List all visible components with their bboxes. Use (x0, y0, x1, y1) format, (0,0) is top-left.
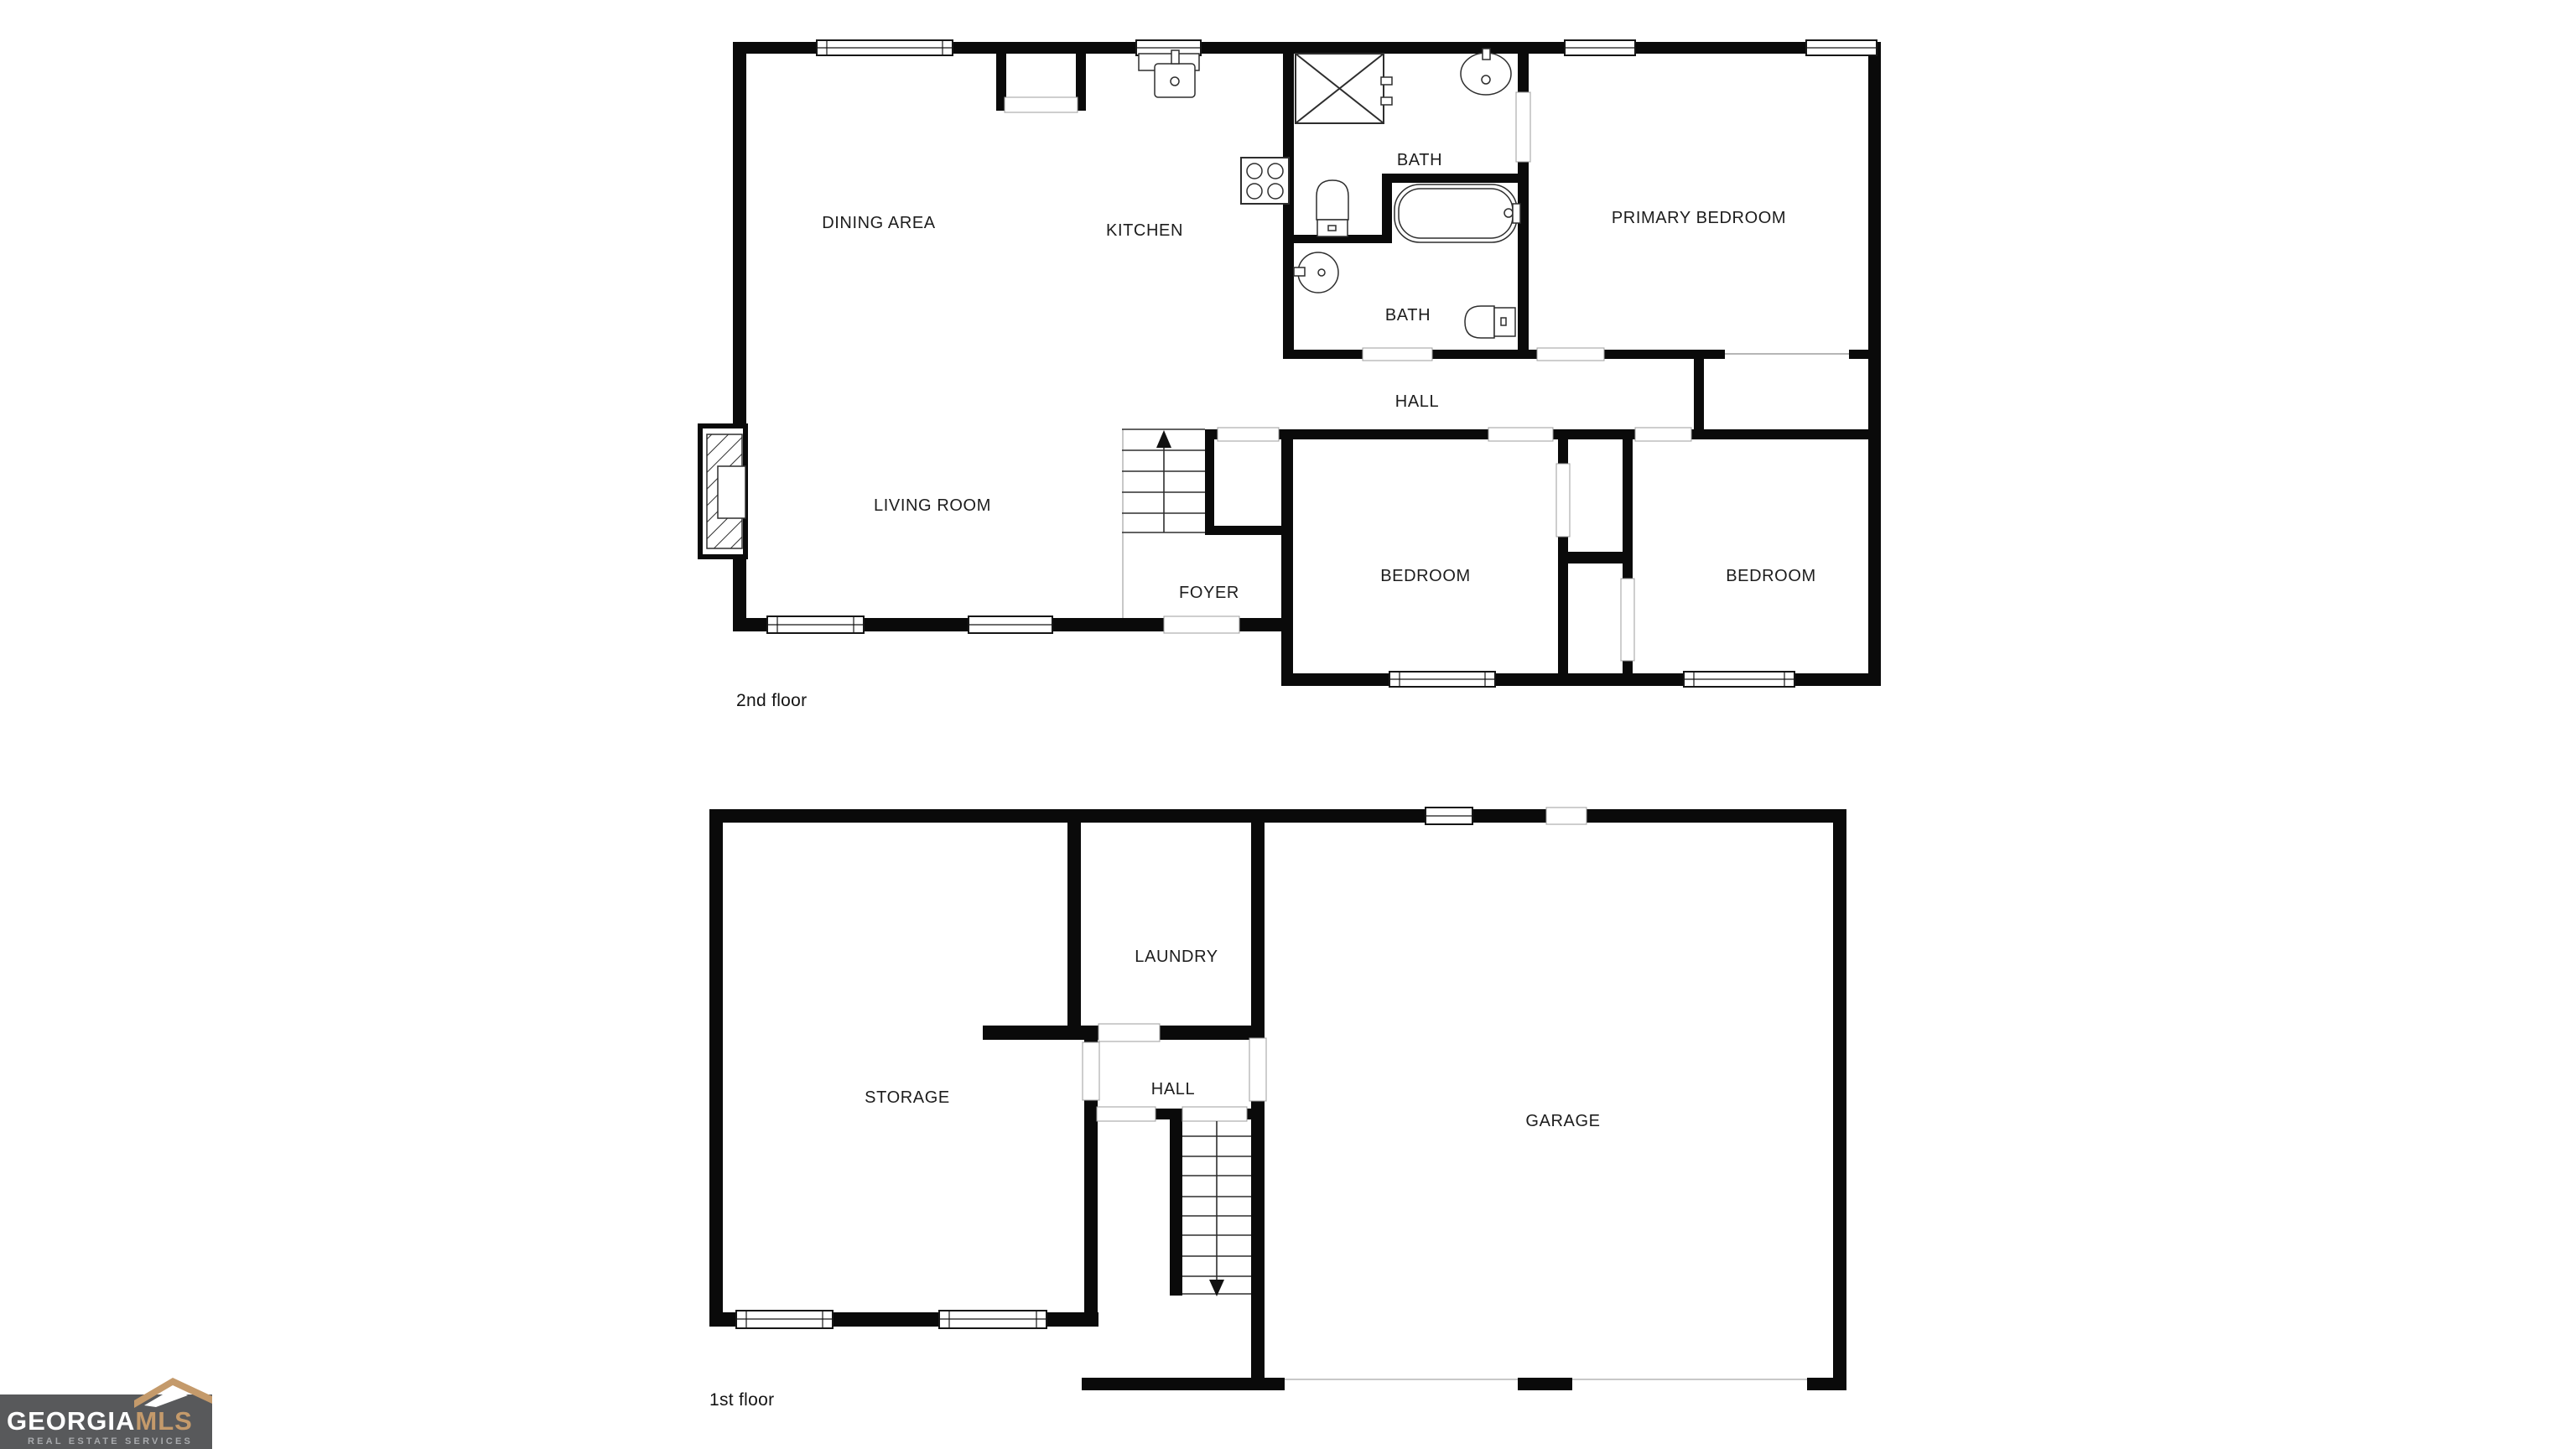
sliding-closet-door (1725, 349, 1849, 360)
floor-plan-2nd-floor: DINING AREA KITCHEN BATH PRIMARY BEDROOM… (700, 40, 1881, 710)
bathroom-sink-icon (1461, 49, 1511, 95)
room-label-bath-top: BATH (1397, 151, 1442, 169)
window-icon (1806, 40, 1877, 55)
room-label-storage: STORAGE (865, 1088, 950, 1107)
floor-label-2nd: 2nd floor (736, 691, 807, 710)
door-opening-primary-to-bath (1516, 92, 1530, 162)
window-icon (817, 40, 953, 55)
staircase-down-icon (1182, 1121, 1251, 1296)
room-label-primary-bedroom: PRIMARY BEDROOM (1612, 209, 1786, 227)
shower-icon (1296, 54, 1392, 123)
floor-label-1st: 1st floor (709, 1390, 774, 1410)
window-icon (1684, 672, 1794, 687)
room-label-hall-1st: HALL (1151, 1080, 1195, 1098)
door-opening-closet-left (1556, 464, 1570, 537)
bathtub-icon (1394, 184, 1520, 242)
room-label-foyer: FOYER (1179, 584, 1239, 602)
door-opening-storage-hall (1083, 1042, 1099, 1100)
windows-1st-floor (736, 808, 1472, 1328)
window-icon (736, 1311, 833, 1328)
door-opening-closet-right (1621, 579, 1634, 661)
door-opening-laundry (1098, 1024, 1160, 1041)
door-opening-pantry (1005, 97, 1078, 112)
room-label-bedroom-right: BEDROOM (1726, 567, 1816, 585)
room-label-bedroom-left: BEDROOM (1380, 567, 1471, 585)
room-label-garage: GARAGE (1525, 1112, 1600, 1130)
window-icon (1389, 672, 1495, 687)
window-icon (767, 616, 864, 633)
windows-2nd-floor (767, 40, 1877, 687)
window-icon (939, 1311, 1046, 1328)
room-label-hall: HALL (1395, 392, 1439, 411)
georgia-mls-logo: GEORGIAMLS REAL ESTATE SERVICES (0, 1378, 212, 1449)
floor-plan-canvas: DINING AREA KITCHEN BATH PRIMARY BEDROOM… (0, 0, 2576, 1449)
door-opening-hall-closet (1218, 428, 1279, 441)
logo-brand-text: GEORGIAMLS (7, 1406, 193, 1436)
room-label-living-room: LIVING ROOM (874, 496, 991, 515)
toilet-icon (1465, 306, 1515, 338)
floor-plan-page: DINING AREA KITCHEN BATH PRIMARY BEDROOM… (0, 0, 2576, 1449)
door-opening-hall-to-bath (1363, 348, 1432, 361)
bathroom-sink-icon (1294, 252, 1338, 293)
toilet-icon (1317, 180, 1348, 236)
window-icon (1565, 40, 1635, 55)
door-opening-bedroom-left (1488, 428, 1553, 441)
stove-icon (1241, 158, 1289, 204)
window-icon (969, 616, 1052, 633)
room-label-laundry: LAUNDRY (1135, 948, 1218, 966)
floor-plan-1st-floor: LAUNDRY STORAGE HALL GARAGE 1st floor (709, 808, 1846, 1410)
room-label-dining-area: DINING AREA (822, 214, 936, 232)
door-opening-foyer-entry (1164, 616, 1239, 633)
fireplace-icon (700, 426, 745, 557)
room-label-bath-bottom: BATH (1385, 306, 1431, 325)
door-opening-hall-to-primary (1537, 348, 1604, 361)
walls-2nd-floor (733, 42, 1881, 686)
door-opening-garage-entry (1546, 808, 1587, 824)
door-opening-bedroom-right (1635, 428, 1691, 441)
door-opening-hall-garage (1249, 1038, 1266, 1101)
door-opening-stairs (1182, 1107, 1247, 1121)
room-label-kitchen: KITCHEN (1106, 221, 1183, 240)
door-opening-hall-landing (1097, 1107, 1156, 1121)
kitchen-sink-icon (1139, 50, 1199, 97)
logo-tagline-text: REAL ESTATE SERVICES (28, 1436, 193, 1446)
window-icon (1426, 808, 1472, 824)
